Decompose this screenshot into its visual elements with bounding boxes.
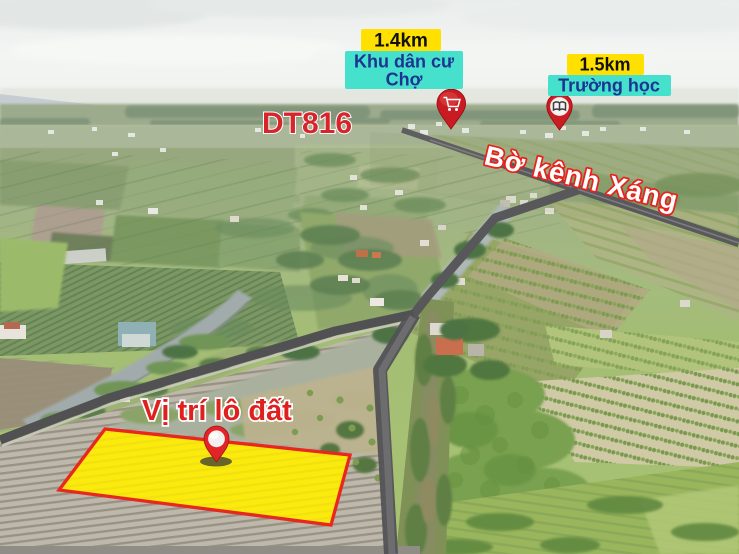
svg-text:Trường học: Trường học xyxy=(558,76,660,96)
svg-text:Chợ: Chợ xyxy=(386,70,423,90)
svg-text:Khu dân cư: Khu dân cư xyxy=(354,52,455,72)
svg-text:1.5km: 1.5km xyxy=(579,55,630,75)
svg-text:1.4km: 1.4km xyxy=(374,31,428,52)
svg-text:DT816: DT816 xyxy=(262,107,352,140)
svg-text:Vị trí lô đất: Vị trí lô đất xyxy=(142,395,292,427)
